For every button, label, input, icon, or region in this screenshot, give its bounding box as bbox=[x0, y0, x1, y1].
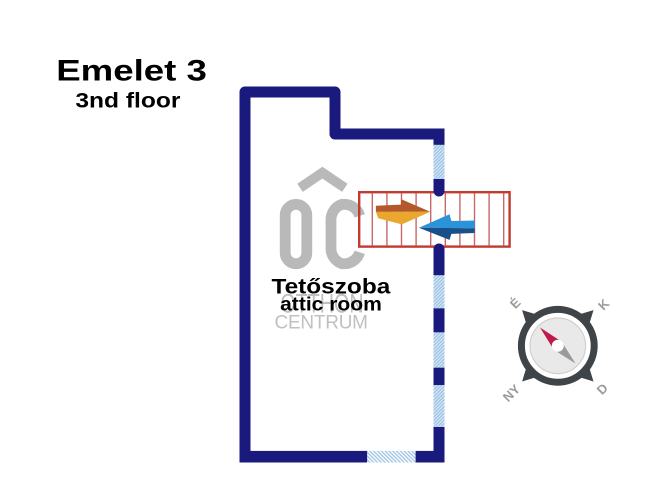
svg-text:NY: NY bbox=[500, 381, 524, 405]
svg-text:attic room: attic room bbox=[280, 294, 382, 315]
svg-text:É: É bbox=[507, 295, 524, 312]
svg-text:K: K bbox=[595, 295, 613, 313]
svg-text:Emelet 3: Emelet 3 bbox=[56, 55, 207, 88]
svg-text:3nd floor: 3nd floor bbox=[75, 88, 180, 112]
svg-text:CENTRUM: CENTRUM bbox=[275, 313, 368, 334]
svg-text:D: D bbox=[594, 380, 611, 397]
